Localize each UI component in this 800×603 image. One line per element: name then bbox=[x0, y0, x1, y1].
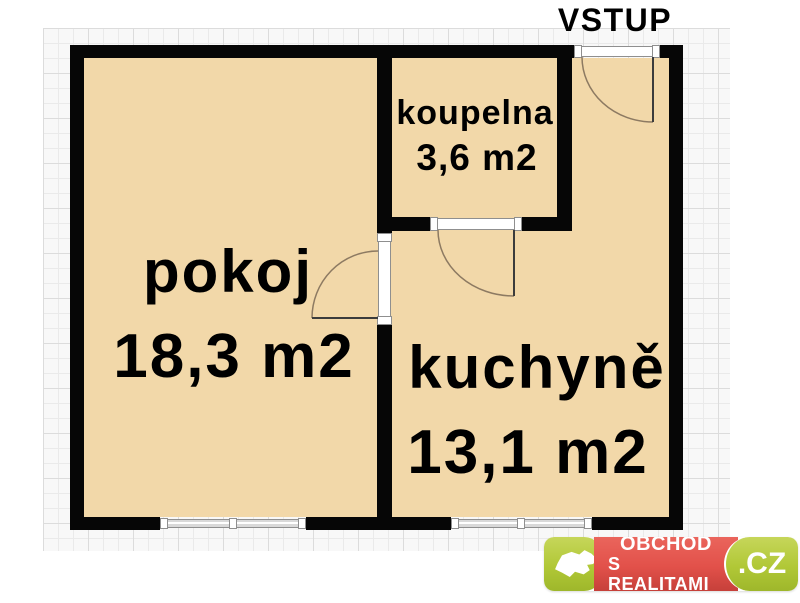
room-area-pokoj: 18,3 m2 bbox=[113, 326, 355, 388]
brand-line1: OBCHOD bbox=[620, 537, 712, 555]
room-name-kuchyne: kuchyně bbox=[408, 338, 665, 398]
brand-tld-panel: .CZ bbox=[724, 537, 798, 591]
wall-middle-lower bbox=[377, 325, 392, 517]
wall-bathroom-bottom-left bbox=[392, 217, 430, 231]
wall-bathroom-right bbox=[557, 58, 572, 231]
pokoj-window-pane-right bbox=[237, 519, 298, 528]
wall-bottom-2 bbox=[306, 517, 451, 530]
room-area-koupelna: 3,6 m2 bbox=[416, 139, 537, 176]
bathroom-door-jamb-right bbox=[514, 217, 522, 231]
pokoj-door-threshold bbox=[378, 242, 391, 316]
wall-bottom-3 bbox=[592, 517, 683, 530]
room-area-kuchyne: 13,1 m2 bbox=[407, 422, 649, 484]
pokoj-window-pane-left bbox=[168, 519, 229, 528]
kitchen-window-jamb-left bbox=[451, 518, 459, 529]
pokoj-door-jamb-bottom bbox=[377, 316, 392, 325]
brand-tld: .CZ bbox=[738, 547, 786, 581]
wall-middle-upper bbox=[377, 58, 392, 233]
entrance-jamb-left bbox=[574, 45, 582, 58]
pokoj-door-jamb-top bbox=[377, 233, 392, 242]
bathroom-door-jamb-left bbox=[430, 217, 438, 231]
brand-line2: S REALITAMI bbox=[608, 555, 724, 591]
bathroom-door-threshold bbox=[438, 218, 514, 230]
pokoj-window-jamb-right bbox=[298, 518, 306, 529]
brand-text-panel: OBCHOD S REALITAMI bbox=[594, 537, 738, 591]
room-name-koupelna: koupelna bbox=[396, 96, 553, 130]
wall-right bbox=[669, 45, 683, 530]
wall-top-left bbox=[70, 45, 574, 58]
wall-bottom-1 bbox=[70, 517, 160, 530]
entrance-threshold bbox=[582, 46, 652, 57]
realty-brand-badge: OBCHOD S REALITAMI .CZ bbox=[544, 537, 798, 591]
entrance-label: VSTUP bbox=[558, 4, 672, 36]
kitchen-window-pane-right bbox=[525, 519, 584, 528]
floor-plan: VSTUP koupelna 3,6 m2 pokoj 18,3 m2 kuch… bbox=[0, 0, 800, 603]
wall-left bbox=[70, 45, 84, 530]
room-name-pokoj: pokoj bbox=[143, 242, 313, 302]
kitchen-window-mullion bbox=[517, 518, 525, 529]
entrance-jamb-right bbox=[652, 45, 660, 58]
pokoj-window-mullion bbox=[229, 518, 237, 529]
kitchen-window-jamb-right bbox=[584, 518, 592, 529]
kitchen-window-pane-left bbox=[459, 519, 517, 528]
pokoj-window-jamb-left bbox=[160, 518, 168, 529]
